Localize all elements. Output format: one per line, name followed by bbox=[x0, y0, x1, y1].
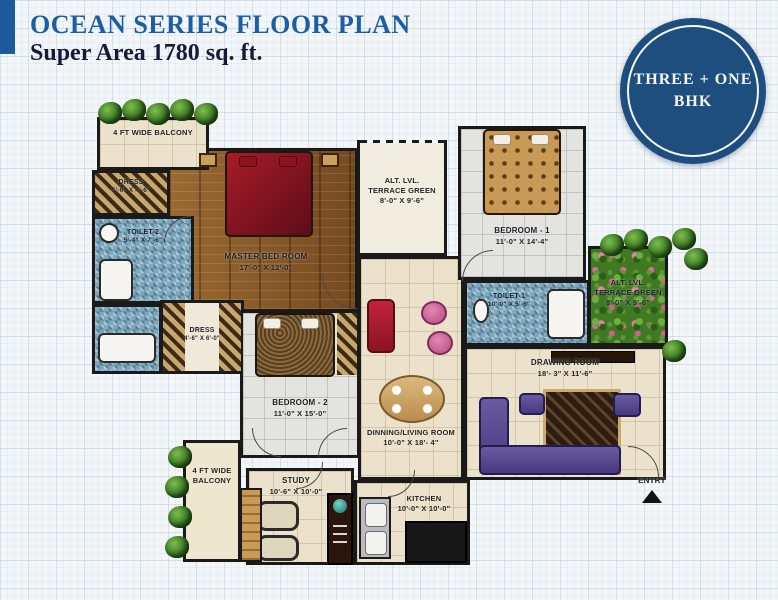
shelf-line bbox=[333, 541, 347, 543]
basin-icon bbox=[333, 499, 347, 513]
page-title: OCEAN SERIES FLOOR PLAN bbox=[30, 10, 411, 40]
floor-plan-page: OCEAN SERIES FLOOR PLAN Super Area 1780 … bbox=[0, 0, 778, 600]
shelf-line bbox=[333, 533, 347, 535]
pillow bbox=[301, 318, 319, 329]
room-label-bedroom-2: BEDROOM - 2 11'-0" X 15'-0" bbox=[240, 398, 360, 419]
plant-icon bbox=[98, 102, 122, 124]
bhk-badge-ring: THREE + ONE BHK bbox=[627, 25, 759, 157]
room-bath-2 bbox=[92, 304, 162, 374]
bhk-badge-line1: THREE + ONE bbox=[634, 69, 753, 91]
plant-icon bbox=[122, 99, 146, 121]
pillow bbox=[531, 134, 549, 145]
room-label-dress-2: DRESS 4'-6" X 6'-0" bbox=[160, 326, 244, 344]
room-label-balcony-bottom: 4 FT WIDE BALCONY bbox=[184, 466, 240, 486]
shelf-line bbox=[333, 525, 347, 527]
study-chair bbox=[257, 535, 299, 561]
pillow bbox=[263, 318, 281, 329]
bedside-table bbox=[199, 153, 217, 167]
bedside-table bbox=[321, 153, 339, 167]
bhk-badge: THREE + ONE BHK bbox=[620, 18, 766, 164]
plant-icon bbox=[662, 340, 686, 362]
plant-icon bbox=[168, 506, 192, 528]
plant-icon bbox=[600, 234, 624, 256]
room-label-terrace-right: ALT. LVL. TERRACE GREEN 8'-0" X 9'-6" bbox=[588, 278, 668, 308]
bathtub bbox=[98, 333, 156, 363]
pillow bbox=[239, 156, 257, 167]
room-label-kitchen: KITCHEN 10'-0" X 10'-0" bbox=[380, 494, 468, 514]
utility-unit bbox=[327, 493, 353, 565]
room-toilet-1 bbox=[464, 280, 590, 346]
plant-icon bbox=[672, 228, 696, 250]
room-balcony-top bbox=[97, 117, 209, 170]
plant-icon bbox=[165, 536, 189, 558]
dining-table bbox=[379, 375, 445, 423]
pink-chair bbox=[427, 331, 453, 355]
room-label-dress-1: DRESS 5'-6" X 4'-6" bbox=[92, 178, 170, 196]
bhk-badge-line2: BHK bbox=[674, 91, 713, 113]
room-label-terrace-top: ALT. LVL. TERRACE GREEN 8'-0" X 9'-6" bbox=[357, 176, 447, 206]
armchair bbox=[519, 393, 545, 415]
room-label-drawing-room: DRAWING ROOM 18'- 3" X 11'-6" bbox=[474, 358, 656, 379]
deck-planks bbox=[240, 488, 262, 562]
room-label-toilet-2: TOILET-2 5'-4" X 7'-6" bbox=[92, 228, 194, 246]
pillow bbox=[493, 134, 511, 145]
kitchen-counter bbox=[405, 521, 467, 563]
header-accent-bar bbox=[0, 0, 15, 54]
armchair bbox=[613, 393, 641, 417]
room-label-balcony-top: 4 FT WIDE BALCONY bbox=[97, 128, 209, 138]
plant-icon bbox=[648, 236, 672, 258]
entry-arrow-icon bbox=[642, 490, 662, 503]
red-sofa bbox=[367, 299, 395, 353]
sofa-bottom bbox=[479, 445, 621, 475]
plant-icon bbox=[684, 248, 708, 270]
pink-chair bbox=[421, 301, 447, 325]
entry-label: ENTRY bbox=[626, 476, 678, 487]
room-label-study: STUDY 10'-6" X 10'-0" bbox=[246, 476, 346, 497]
plant-icon bbox=[194, 103, 218, 125]
room-kitchen bbox=[354, 480, 470, 565]
room-label-master-bedroom: MASTER BED ROOM 17'-0" X 12'-0" bbox=[196, 252, 336, 273]
plant-icon bbox=[146, 103, 170, 125]
page-subtitle: Super Area 1780 sq. ft. bbox=[30, 40, 262, 67]
study-table bbox=[257, 501, 299, 531]
master-bed bbox=[225, 151, 313, 237]
plant-icon bbox=[170, 99, 194, 121]
room-label-toilet-1: TOILET-1 10'-0" X 5'-6" bbox=[464, 292, 554, 310]
bedroom1-bed bbox=[483, 129, 561, 215]
room-label-dining-living: DINNING/LIVING ROOM 10'-0" X 18'- 4" bbox=[358, 428, 464, 448]
bathtub bbox=[99, 259, 133, 301]
plant-icon bbox=[624, 229, 648, 251]
wardrobe bbox=[337, 313, 357, 375]
bedroom2-bed bbox=[255, 313, 335, 377]
room-label-bedroom-1: BEDROOM - 1 11'-0" X 14'-4" bbox=[458, 226, 586, 247]
pillow bbox=[279, 156, 297, 167]
plant-icon bbox=[168, 446, 192, 468]
plant-icon bbox=[165, 476, 189, 498]
sink-bowl bbox=[365, 531, 387, 555]
